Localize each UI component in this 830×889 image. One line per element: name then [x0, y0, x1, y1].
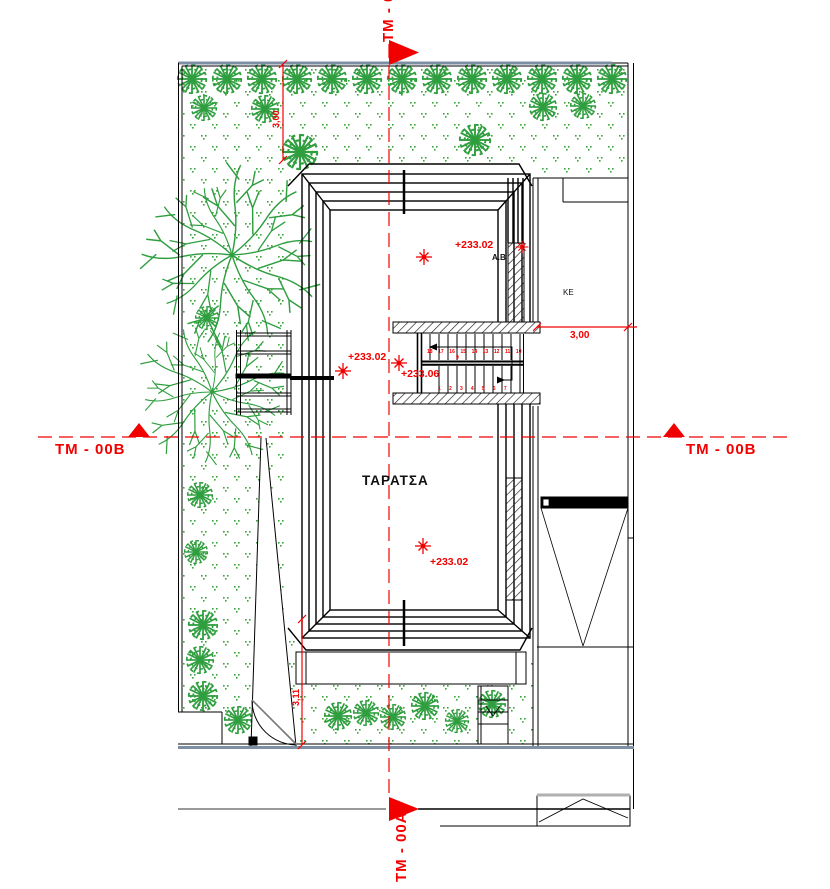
dimension-top-left: 3,00: [272, 88, 281, 128]
section-flag-top-icon: [389, 40, 419, 65]
dimension-right: 3,00: [570, 331, 589, 341]
stair-numbers-upper: 18 17 16 15 14 13 12 11 10: [427, 350, 522, 355]
level-bottom: +233.02: [430, 557, 468, 568]
stair-numbers-lower: 1 2 3 4 5 6 7: [438, 387, 507, 392]
section-flag-left-icon: [128, 423, 150, 437]
room-label-ke: KE: [563, 289, 574, 297]
axis-label-left: TM - 00B: [55, 442, 126, 457]
level-stair-left: +233.02: [348, 352, 386, 363]
level-top: +233.02: [455, 240, 493, 251]
axis-label-top: TM - 00A: [381, 0, 396, 42]
roof-terrace-label: ΤΑΡΑΤΣΑ: [362, 474, 429, 488]
axis-label-right: TM - 00B: [686, 442, 757, 457]
section-flag-right-icon: [663, 423, 685, 437]
dimension-bottom-left: 3,11: [292, 662, 301, 706]
point-label-ab: A.B: [492, 254, 506, 262]
site-plan-page: TM - 00A TM - 00A TM - 00B TM - 00B ΤΑΡΑ…: [0, 0, 830, 889]
level-stair-entry: +233.06: [401, 369, 439, 380]
axis-label-bottom: TM - 00A: [394, 810, 409, 882]
stair-number-mid: 9: [456, 356, 459, 361]
